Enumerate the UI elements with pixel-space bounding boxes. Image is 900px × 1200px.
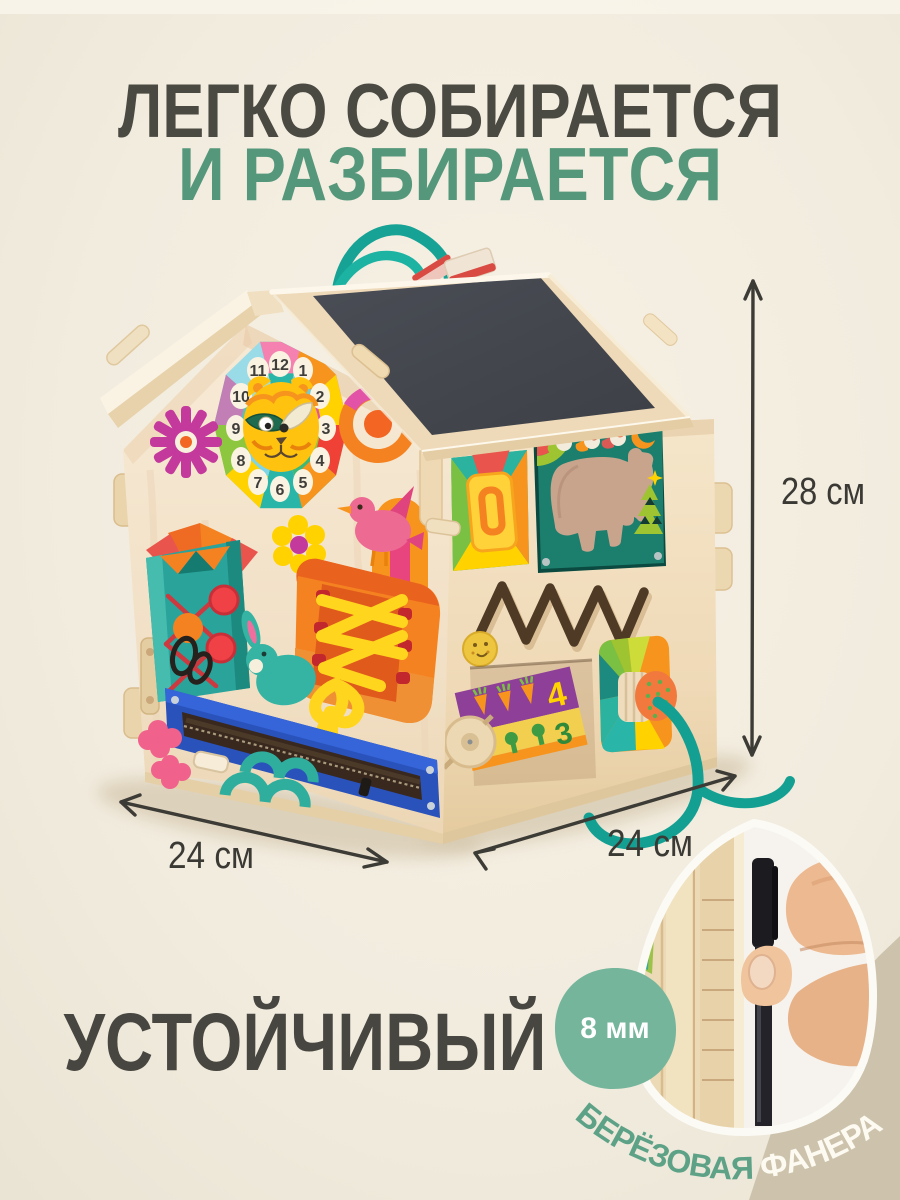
svg-text:12: 12 [271, 357, 289, 374]
svg-text:3: 3 [322, 421, 331, 438]
svg-text:8 мм: 8 мм [580, 1012, 649, 1045]
svg-text:4: 4 [316, 453, 325, 470]
svg-text:9: 9 [232, 421, 241, 438]
svg-text:24 см: 24 см [607, 823, 693, 865]
svg-text:5: 5 [299, 475, 308, 492]
svg-text:6: 6 [276, 482, 285, 499]
svg-text:УСТОЙЧИВЫЙ: УСТОЙЧИВЫЙ [64, 996, 547, 1088]
svg-text:24 см: 24 см [168, 835, 254, 877]
svg-text:8: 8 [237, 453, 246, 470]
svg-text:7: 7 [254, 475, 263, 492]
svg-text:28 см: 28 см [781, 471, 865, 513]
svg-text:И РАЗБИРАЕТСЯ: И РАЗБИРАЕТСЯ [178, 132, 722, 216]
